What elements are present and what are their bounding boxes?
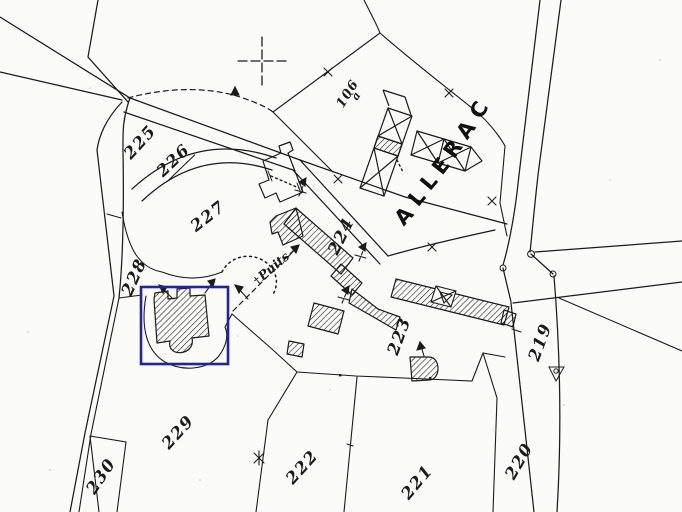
building-detached-a bbox=[308, 303, 344, 334]
survey-cross bbox=[238, 37, 286, 85]
building-open-main bbox=[259, 142, 303, 202]
cadastral-map-scan: †Puits 106 à 225226227228229230222221220… bbox=[0, 0, 682, 512]
dashed-lines bbox=[128, 90, 403, 311]
hatched-buildings bbox=[154, 208, 516, 381]
building-detached-b bbox=[287, 341, 304, 357]
x-ticks bbox=[324, 68, 496, 251]
building-rounded bbox=[410, 357, 438, 381]
parcel-boundaries bbox=[79, 0, 682, 512]
map-linework bbox=[0, 0, 682, 512]
building-strip-long bbox=[284, 208, 353, 274]
building-subject bbox=[154, 288, 209, 353]
